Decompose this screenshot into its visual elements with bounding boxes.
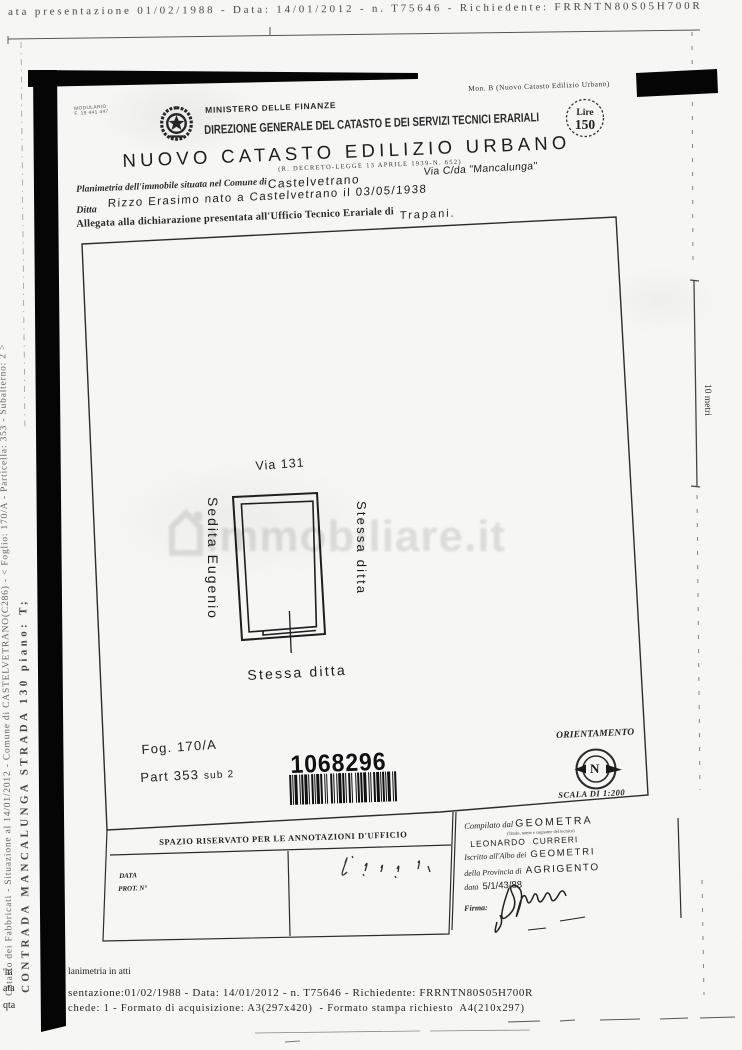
svg-text:150: 150: [575, 117, 596, 132]
